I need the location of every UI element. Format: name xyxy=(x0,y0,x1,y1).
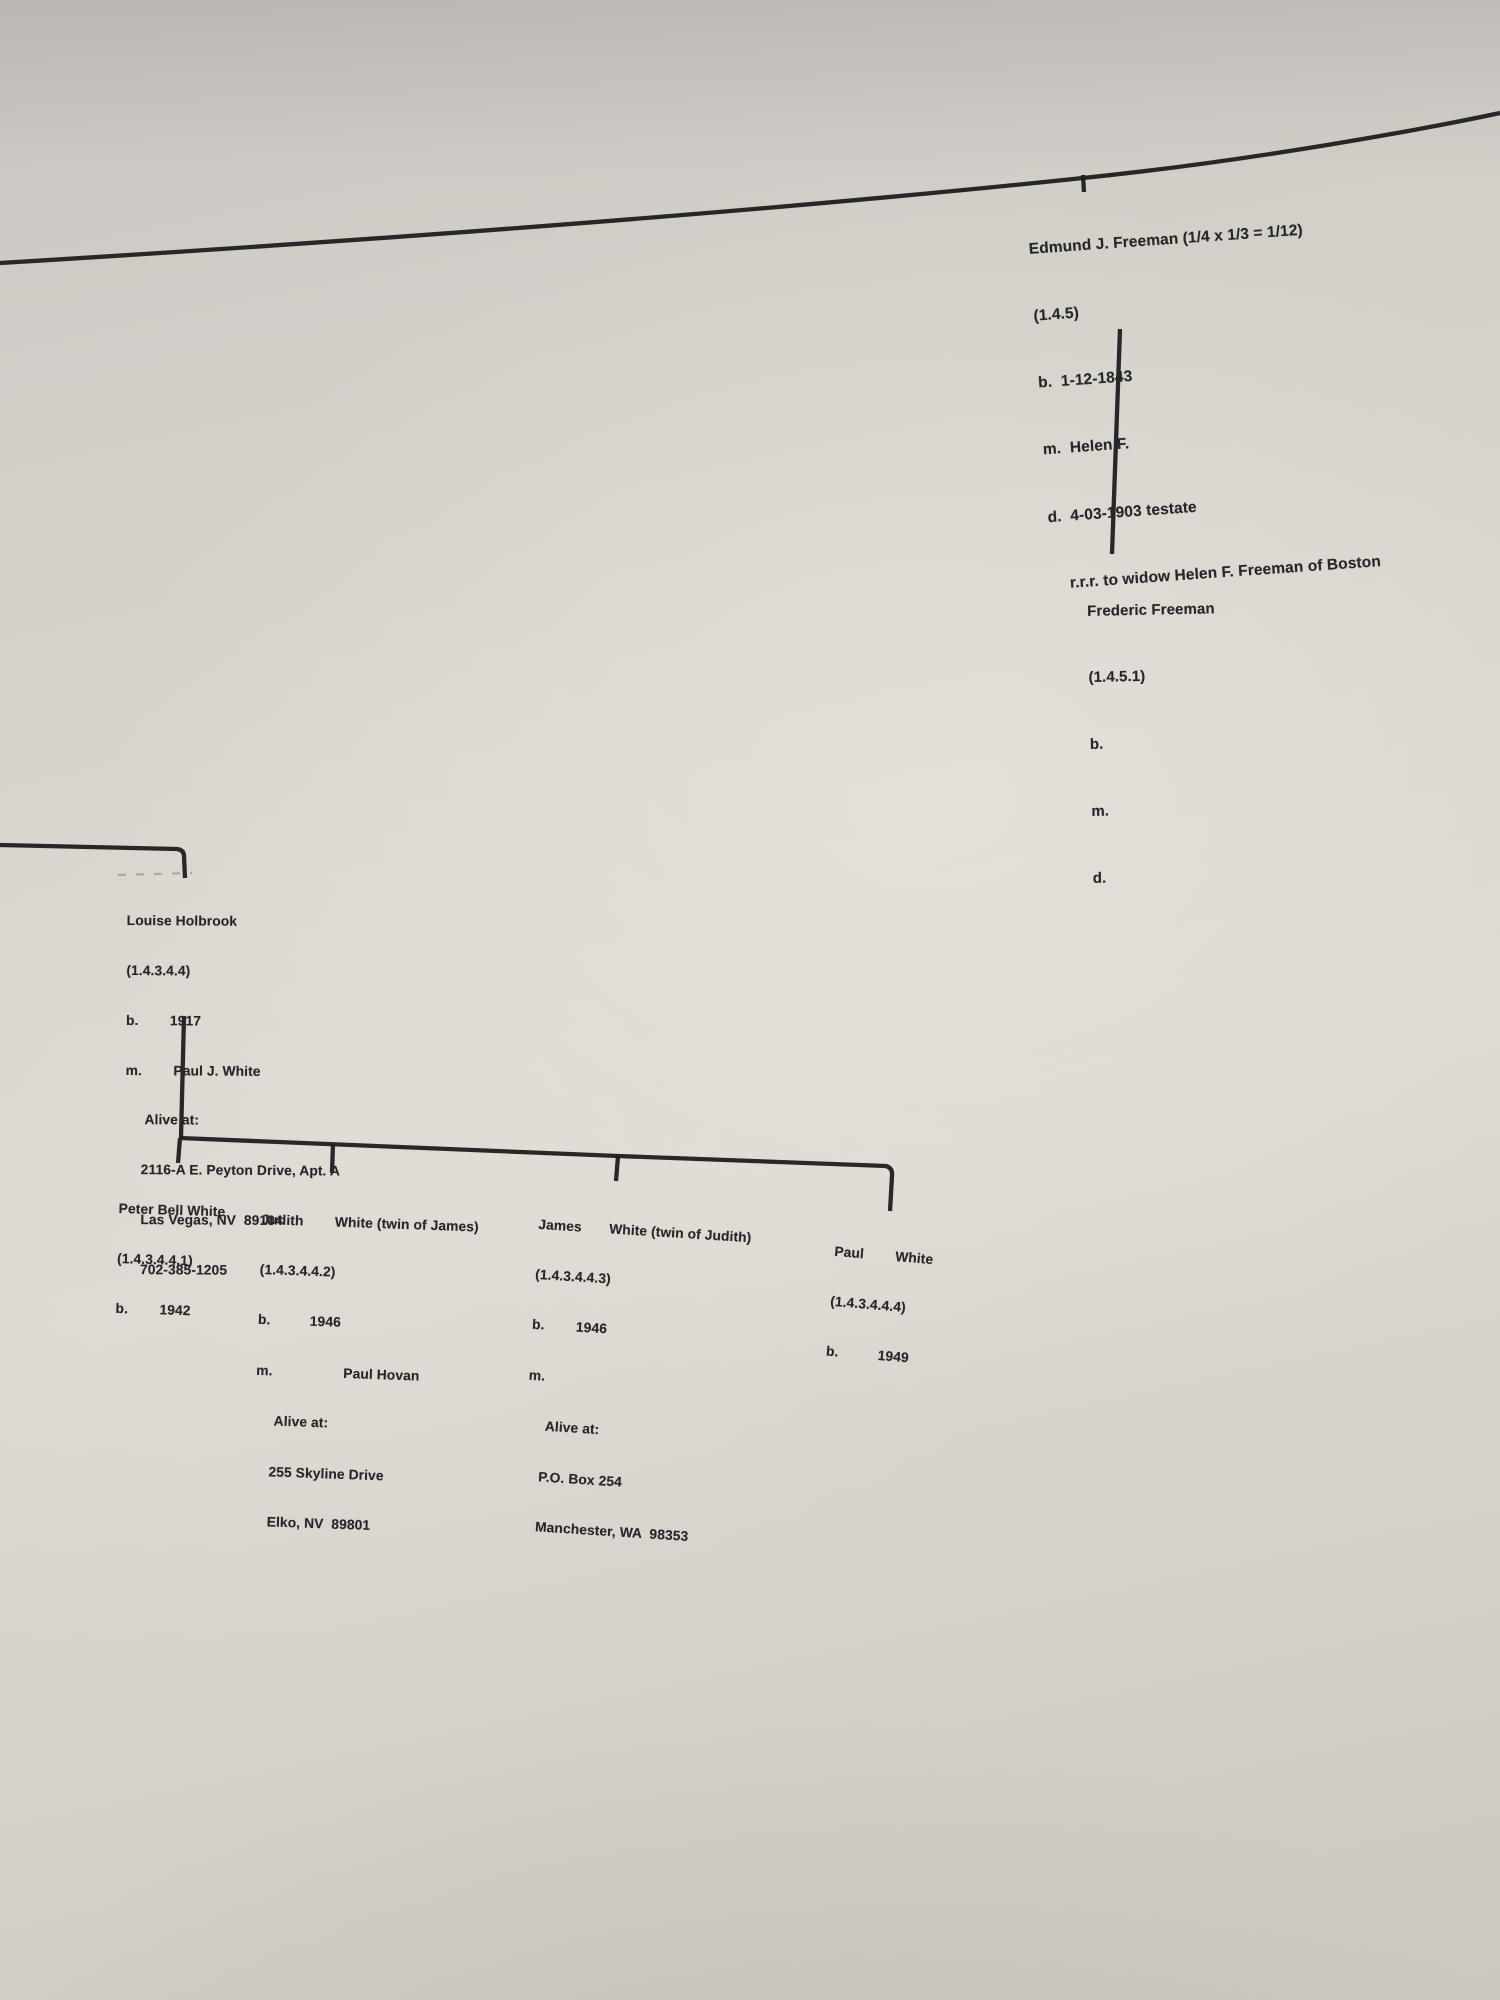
node-judith-white: Judith White (twin of James) (1.4.3.4.4.… xyxy=(250,1178,481,1572)
node-id-line: (1.4.3.4.4.4) xyxy=(830,1294,930,1319)
node-address-line: P.O. Box 254 xyxy=(522,1468,736,1498)
node-address-line: Elko, NV 89801 xyxy=(251,1514,469,1538)
node-id-line: (1.4.3.4.4.1) xyxy=(117,1251,224,1271)
node-paul-white: Paul White (1.4.3.4.4.4) b. 1949 xyxy=(823,1210,937,1402)
node-alive-at-label: Alive at: xyxy=(525,1418,739,1448)
node-name-line: James White (twin of Judith) xyxy=(538,1217,752,1247)
node-marriage-line: m. xyxy=(1091,799,1219,824)
node-marriage-line: m. Paul Hovan xyxy=(256,1363,474,1387)
node-id-line: (1.4.3.4.4.3) xyxy=(535,1267,749,1297)
node-birth-line: b. 1949 xyxy=(825,1344,925,1369)
node-marriage-line: m. Paul J. White xyxy=(126,1063,341,1081)
node-birth-line: b. 1917 xyxy=(126,1013,341,1031)
node-birth-line: b. 1946 xyxy=(532,1317,746,1347)
node-death-line: d. xyxy=(1093,865,1221,890)
node-name-line: Peter Bell White xyxy=(118,1201,225,1221)
node-id-line: (1.4.5) xyxy=(1033,283,1363,328)
node-death-line: d. 4-03-1903 testate xyxy=(1047,484,1377,529)
connector-faint-dashes xyxy=(118,873,192,875)
node-birth-line: b. xyxy=(1090,732,1218,757)
node-name-line: Paul White xyxy=(834,1243,934,1268)
node-james-white: James White (twin of Judith) (1.4.3.4.4.… xyxy=(517,1183,754,1582)
node-alive-at-label: Alive at: xyxy=(125,1112,340,1130)
node-name-line: Louise Holbrook xyxy=(127,913,342,931)
node-marriage-line: m. xyxy=(528,1367,742,1397)
node-birth-line: b. 1-12-1843 xyxy=(1038,350,1368,395)
node-address-line: 255 Skyline Drive xyxy=(252,1463,470,1487)
node-alive-at-label: Alive at: xyxy=(254,1413,472,1437)
connector-drop-james xyxy=(616,1156,618,1181)
node-id-line: (1.4.3.4.4) xyxy=(126,963,341,981)
node-birth-line: b. 1942 xyxy=(115,1301,222,1321)
node-frederic-freeman: Frederic Freeman (1.4.5.1) b. m. d. xyxy=(1086,553,1221,935)
node-peter-bell-white: Peter Bell White (1.4.3.4.4.1) b. 1942 xyxy=(114,1167,226,1355)
node-id-line: (1.4.5.1) xyxy=(1088,665,1216,690)
node-birth-line: b. 1946 xyxy=(258,1312,476,1336)
node-name-line: Edmund J. Freeman (1/4 x 1/3 = 1/12) xyxy=(1028,216,1358,261)
node-marriage-line: m. Helen F. xyxy=(1042,417,1372,462)
node-id-line: (1.4.3.4.4.2) xyxy=(259,1262,477,1286)
node-address-line: Manchester, WA 98353 xyxy=(519,1518,733,1548)
node-name-line: Judith White (twin of James) xyxy=(261,1212,479,1236)
node-name-line: Frederic Freeman xyxy=(1087,598,1215,623)
genealogy-chart-page: Edmund J. Freeman (1/4 x 1/3 = 1/12) (1.… xyxy=(0,0,1500,2000)
